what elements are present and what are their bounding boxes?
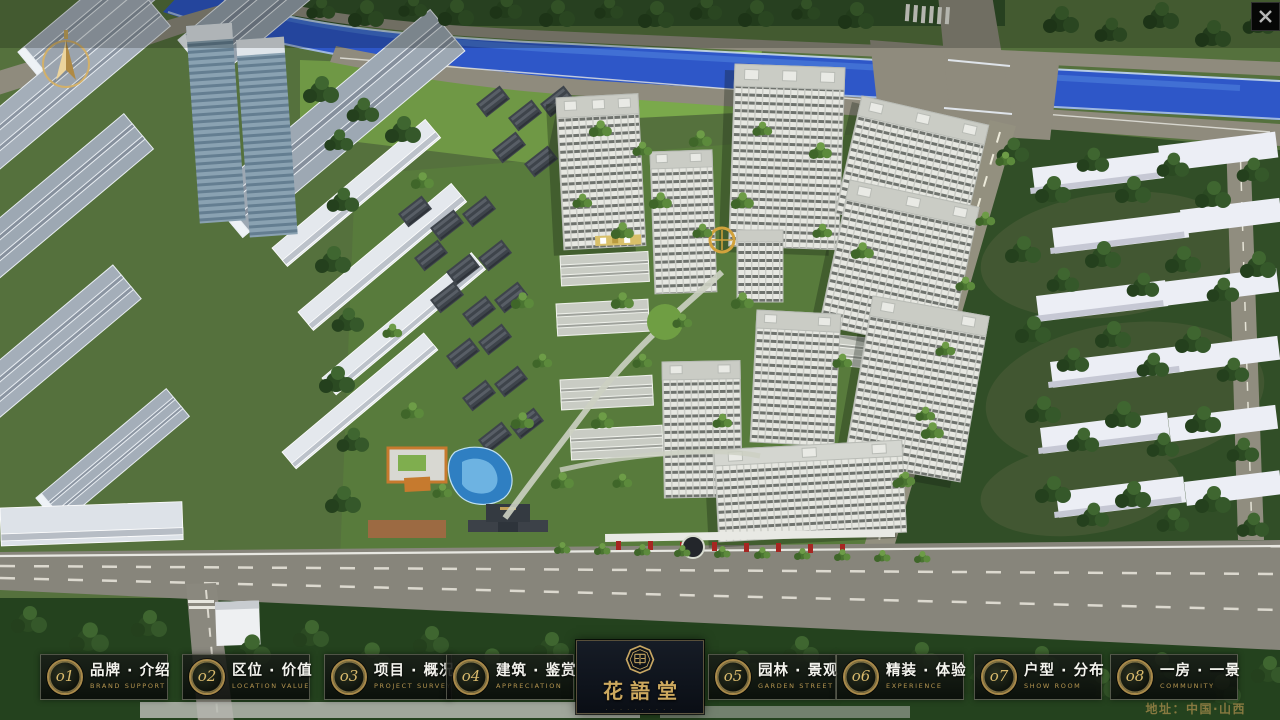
menu-label-en: PROJECT SURVEY bbox=[374, 683, 445, 690]
menu-item-floorplan[interactable]: o7 户型 · 分布 SHOW ROOM bbox=[974, 654, 1102, 700]
menu-number-badge: o8 bbox=[1117, 659, 1153, 695]
menu-label-en: SHOW ROOM bbox=[1024, 683, 1095, 690]
menu-label-en: COMMUNITY bbox=[1160, 683, 1231, 690]
menu-label-cn: 项目 · 概况 bbox=[374, 664, 445, 679]
menu-label-cn: 户型 · 分布 bbox=[1024, 664, 1095, 679]
masterplan-render bbox=[0, 0, 1280, 720]
menu-label-cn: 品牌 · 介绍 bbox=[90, 664, 161, 679]
menu-number: o4 bbox=[462, 667, 481, 685]
menu-number: o3 bbox=[340, 667, 359, 685]
menu-number: o5 bbox=[724, 667, 743, 685]
menu-number: o1 bbox=[56, 667, 75, 685]
menu-number: o7 bbox=[990, 667, 1009, 685]
project-address: 地址：中国·山西 bbox=[1145, 700, 1246, 717]
menu-label-cn: 园林 · 景观 bbox=[758, 664, 829, 679]
menu-item-views[interactable]: o8 一房 · 一景 COMMUNITY bbox=[1110, 654, 1238, 700]
menu-number-badge: o6 bbox=[843, 659, 879, 695]
menu-number: o6 bbox=[852, 667, 871, 685]
menu-label-cn: 精装 · 体验 bbox=[886, 664, 957, 679]
menu-item-architecture[interactable]: o4 建筑 · 鉴赏 APPRECIATION bbox=[446, 654, 574, 700]
menu-number-badge: o5 bbox=[715, 659, 751, 695]
menu-number-badge: o1 bbox=[47, 659, 83, 695]
menu-label-cn: 一房 · 一景 bbox=[1160, 664, 1231, 679]
menu-label-en: GARDEN STREET bbox=[758, 683, 829, 690]
menu-label-en: LOCATION VALUE bbox=[232, 683, 303, 690]
menu-item-garden[interactable]: o5 园林 · 景观 GARDEN STREET bbox=[708, 654, 836, 700]
presentation-stage: o1 品牌 · 介绍 BRAND SUPPORT o2 区位 · 价值 LOCA… bbox=[0, 0, 1280, 720]
nav-bar bbox=[0, 0, 1280, 48]
menu-number-badge: o3 bbox=[331, 659, 367, 695]
menu-label-en: EXPERIENCE bbox=[886, 683, 957, 690]
logo-panel[interactable]: 花語堂 · · · · · · · · · · bbox=[576, 640, 704, 714]
menu-number: o2 bbox=[198, 667, 217, 685]
menu-item-brand[interactable]: o1 品牌 · 介绍 BRAND SUPPORT bbox=[40, 654, 168, 700]
menu-number-badge: o4 bbox=[453, 659, 489, 695]
menu-item-interior[interactable]: o6 精装 · 体验 EXPERIENCE bbox=[836, 654, 964, 700]
menu-label-cn: 建筑 · 鉴赏 bbox=[496, 664, 567, 679]
logo-title: 花語堂 bbox=[596, 675, 684, 704]
menu-item-project[interactable]: o3 项目 · 概况 PROJECT SURVEY bbox=[324, 654, 452, 700]
menu-number-badge: o7 bbox=[981, 659, 1017, 695]
menu-number: o8 bbox=[1126, 667, 1145, 685]
seal-icon bbox=[625, 645, 655, 674]
menu-item-location[interactable]: o2 区位 · 价值 LOCATION VALUE bbox=[182, 654, 310, 700]
menu-number-badge: o2 bbox=[189, 659, 225, 695]
menu-label-en: APPRECIATION bbox=[496, 683, 567, 690]
sidewalk bbox=[140, 702, 640, 718]
menu-label-cn: 区位 · 价值 bbox=[232, 664, 303, 679]
menu-label-en: BRAND SUPPORT bbox=[90, 683, 161, 690]
logo-subtitle: · · · · · · · · · · bbox=[606, 707, 674, 713]
